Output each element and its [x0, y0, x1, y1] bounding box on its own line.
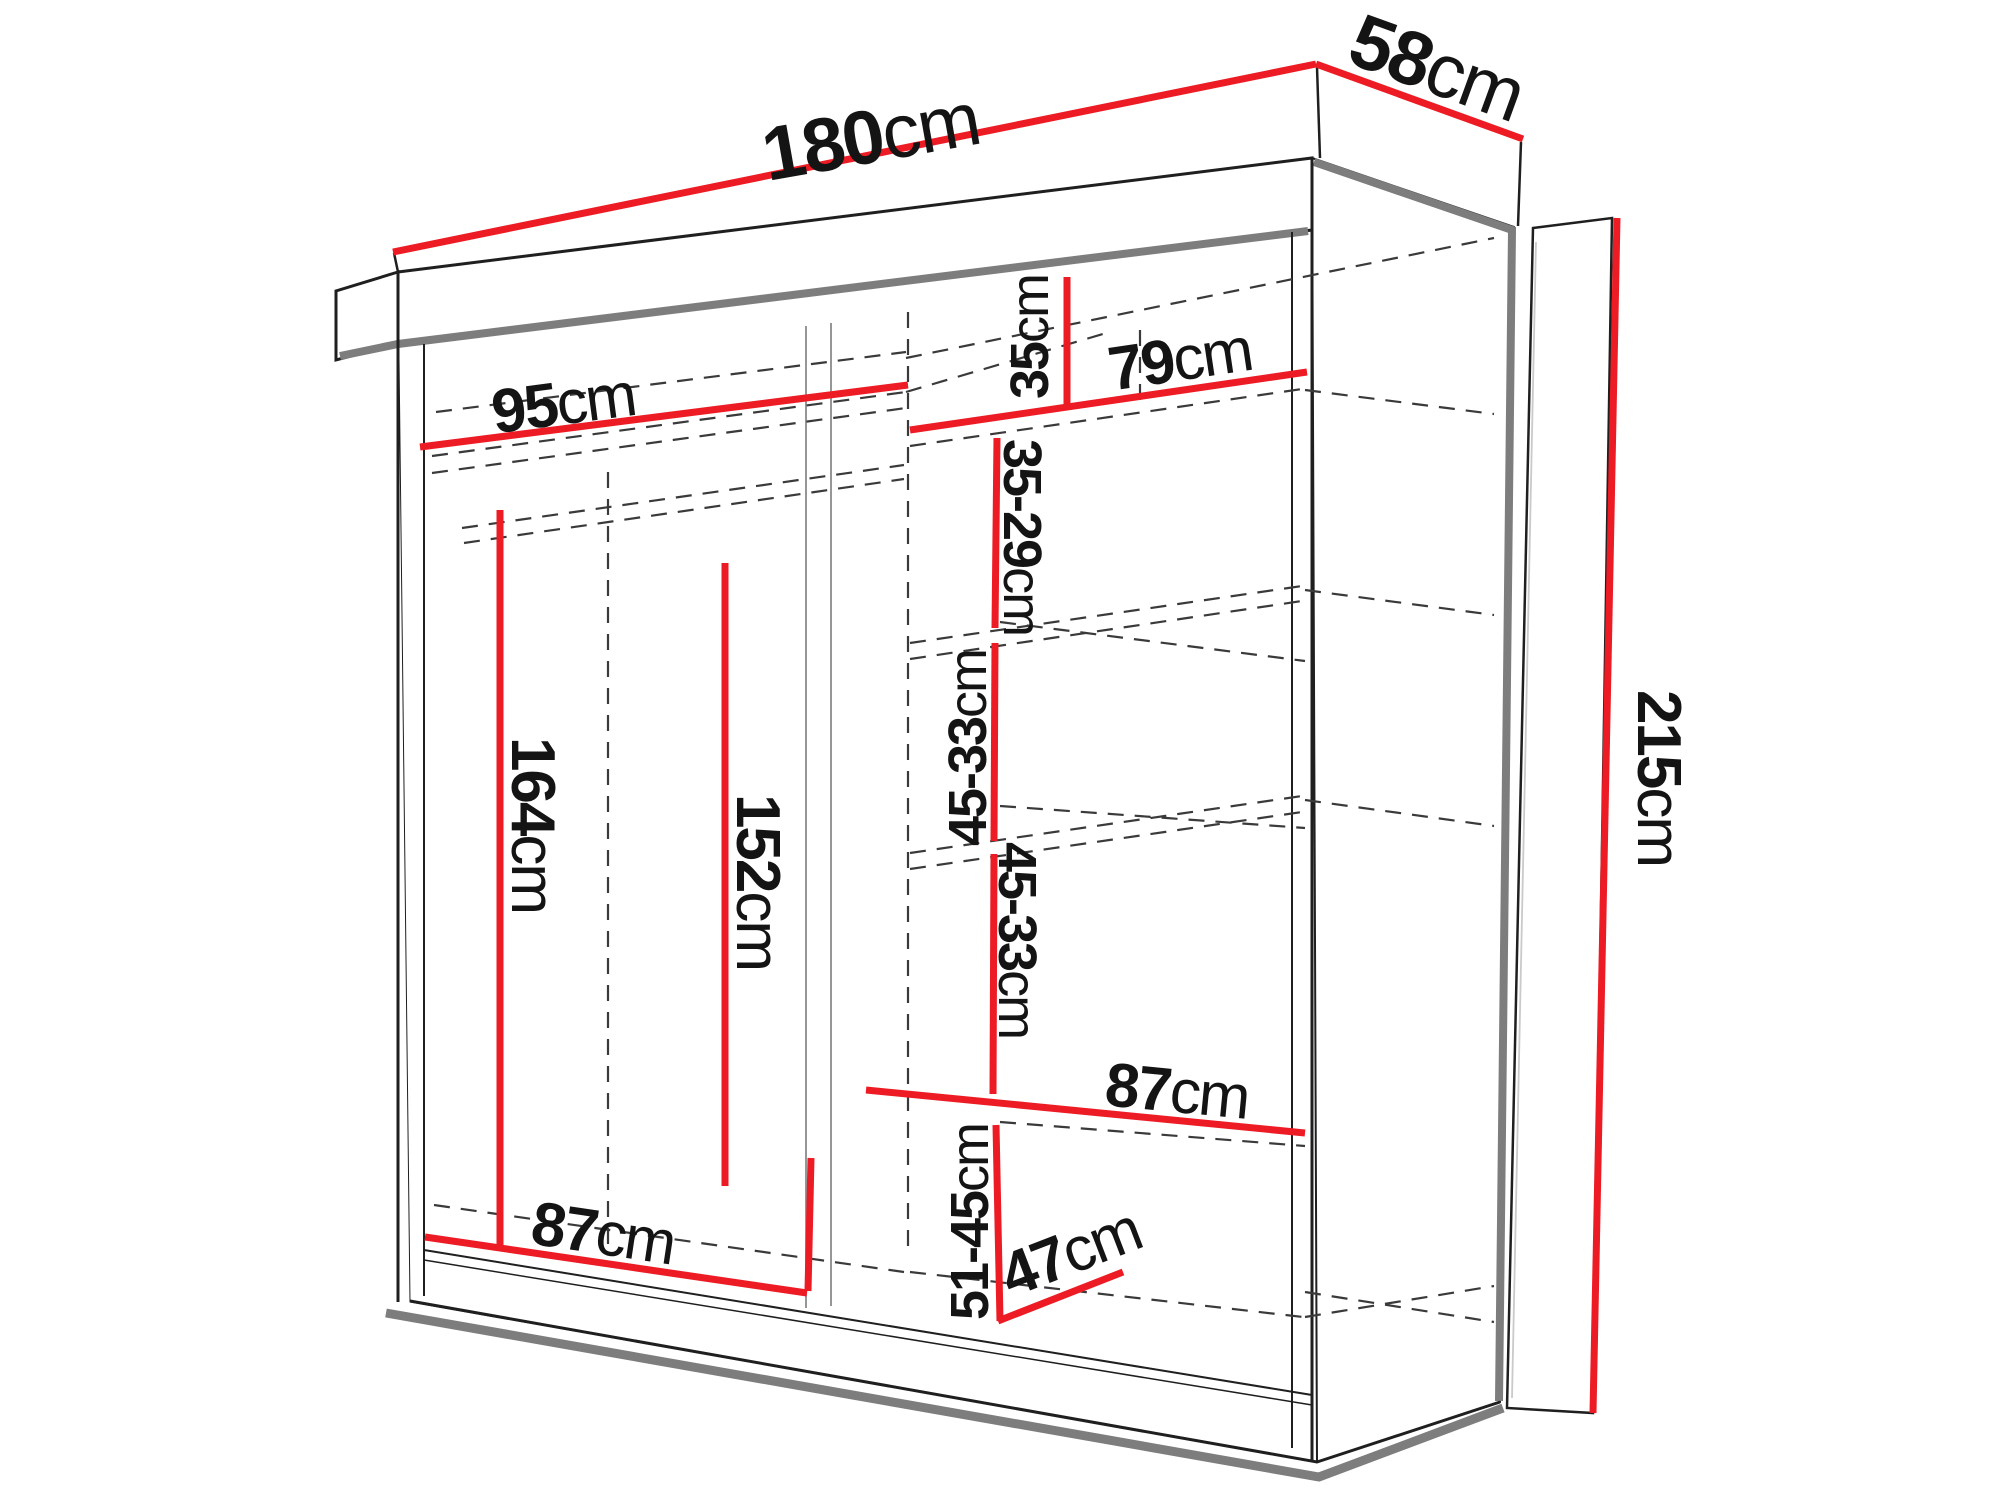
dim-label-left-hanging: 164cm: [498, 737, 567, 913]
dim-ext-87-bottom: [808, 1158, 811, 1291]
wardrobe-dimension-diagram: 180cm 58cm 215cm 95cm 79cm 35cm 35-29cm …: [0, 0, 2000, 1500]
dim-label-top-shelf: 35cm: [1000, 275, 1060, 399]
dim-label-shelf-gap-3: 45-33cm: [987, 842, 1047, 1038]
ext-line-apex: [1317, 67, 1320, 158]
dim-label-bottom-gap: 51-45cm: [940, 1124, 1000, 1320]
diagram-canvas: 180cm 58cm 215cm 95cm 79cm 35cm 35-29cm …: [0, 0, 2000, 1500]
dim-label-height: 215cm: [1624, 690, 1693, 866]
dim-label-mid-hanging: 152cm: [723, 794, 792, 970]
dim-label-depth: 58cm: [1339, 0, 1535, 138]
ext-line-left: [394, 253, 398, 272]
right-side-face: [1312, 158, 1514, 1462]
dim-label-width: 180cm: [756, 76, 986, 198]
dim-label-shelf-gap-1: 35-29cm: [992, 439, 1052, 635]
dim-label-shelf-gap-2: 45-33cm: [938, 650, 998, 846]
dim-label-right-shelf-width: 87cm: [1102, 1050, 1252, 1132]
ext-line-back: [1518, 142, 1521, 226]
